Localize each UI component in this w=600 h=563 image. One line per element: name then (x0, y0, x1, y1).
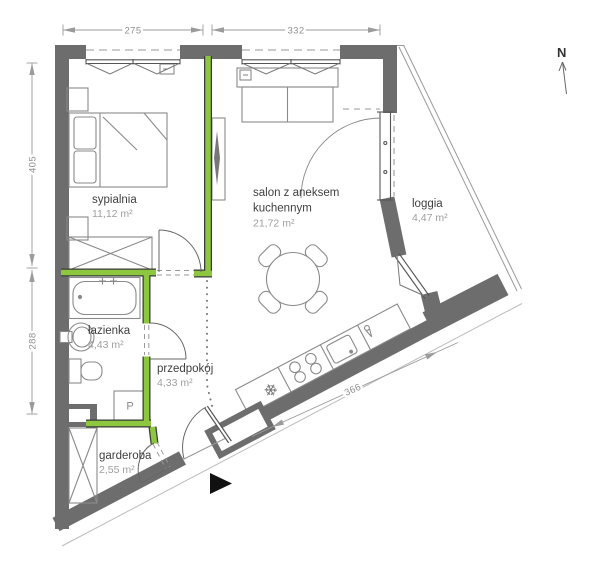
installation-shaft (208, 405, 271, 455)
toilet (69, 359, 102, 383)
living-name-line2: kuchennym (253, 203, 312, 215)
bathroom-name: łazienka (88, 325, 131, 337)
loggia-area: 4,47 m² (412, 212, 448, 224)
wardrobe-room-area: 2,55 m² (99, 464, 135, 476)
loggia-name: loggia (412, 198, 443, 210)
bedroom-wardrobe (69, 237, 152, 270)
nightstand (67, 88, 88, 111)
living-window (242, 50, 340, 74)
radiator-living (240, 70, 251, 80)
wardrobe-room-name: garderoba (99, 450, 152, 462)
dimension-labels: 275 332 405 288 366 (28, 26, 364, 399)
north-label: N (557, 45, 566, 60)
floor-plan-page: ❄ (0, 0, 600, 563)
dining-table (267, 253, 320, 306)
pillow (74, 151, 96, 183)
entrance-marker-icon (210, 473, 232, 494)
hall-boundary-dots (207, 281, 213, 410)
bedroom-window (86, 50, 180, 74)
dim-kitchen-wall: 366 (343, 382, 363, 399)
dim-living-width: 332 (287, 26, 304, 37)
bedroom-name: sypialnia (92, 194, 137, 206)
living-name-line1: salon z aneksem (253, 187, 339, 199)
bedroom-area: 11,12 m² (92, 208, 133, 220)
north-arrow: N (557, 45, 567, 94)
tv-icon (214, 131, 220, 185)
bathroom-area: 4,43 m² (88, 339, 124, 351)
hall-wardrobe (69, 428, 97, 503)
bed (69, 113, 167, 187)
loggia-railing-lines (397, 45, 522, 291)
dim-left-upper: 405 (28, 156, 39, 173)
sofa (237, 68, 338, 122)
kitchen-window (395, 254, 429, 299)
dim-left-lower: 288 (28, 332, 39, 349)
hallway-area: 4,33 m² (157, 377, 193, 389)
floor-plan: ❄ (0, 0, 600, 563)
tv-cabinet (212, 118, 225, 200)
pillow (74, 117, 96, 149)
dining-set (256, 242, 329, 315)
bathroom-door (145, 323, 187, 359)
bedroom-door (157, 230, 201, 275)
hallway-name: przedpokój (157, 363, 213, 375)
dim-bedroom-width: 275 (124, 26, 141, 37)
north-arrow-icon (559, 62, 567, 94)
living-area: 21,72 m² (253, 218, 295, 230)
washing-machine-label: P (126, 401, 133, 413)
washing-machine: P (114, 391, 146, 420)
bathtub (69, 278, 140, 319)
